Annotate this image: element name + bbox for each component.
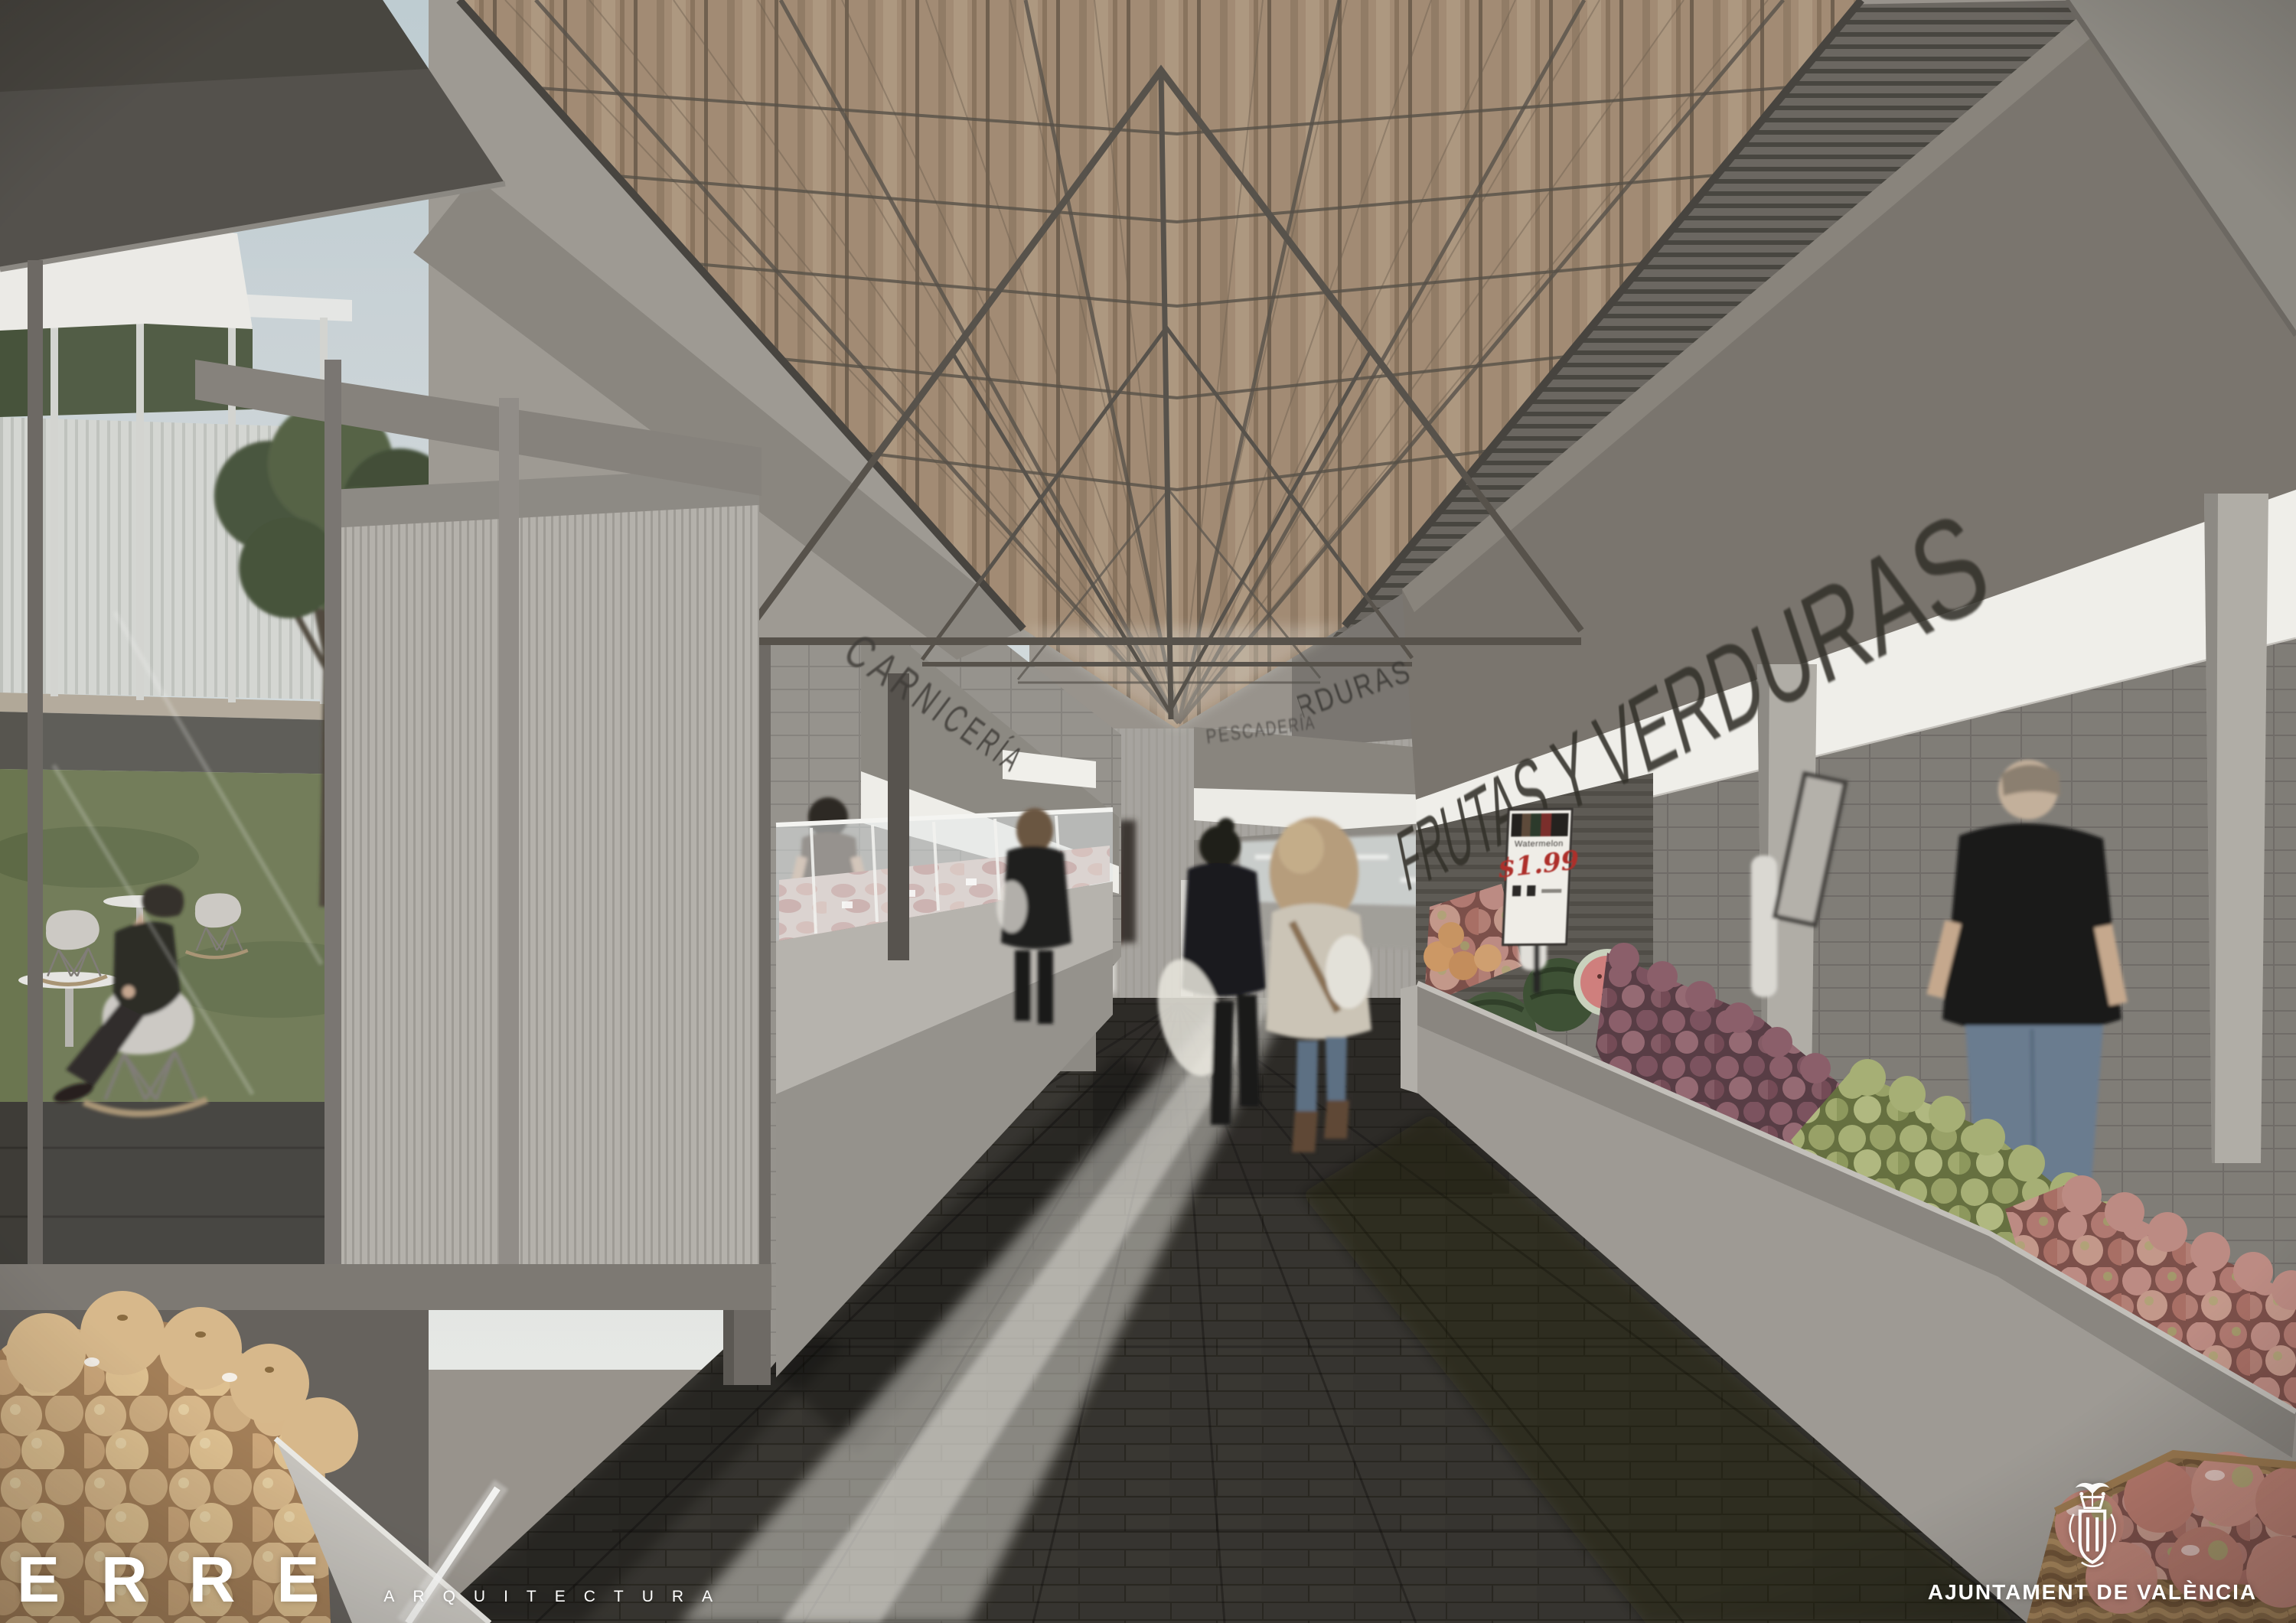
- vignette: [0, 0, 2296, 1623]
- market-hall-rendering: CARNICERÍA FRUTAS Y VERDURAS FRUTAS Y VE…: [0, 0, 2296, 1623]
- scene-painting: [0, 0, 2296, 1623]
